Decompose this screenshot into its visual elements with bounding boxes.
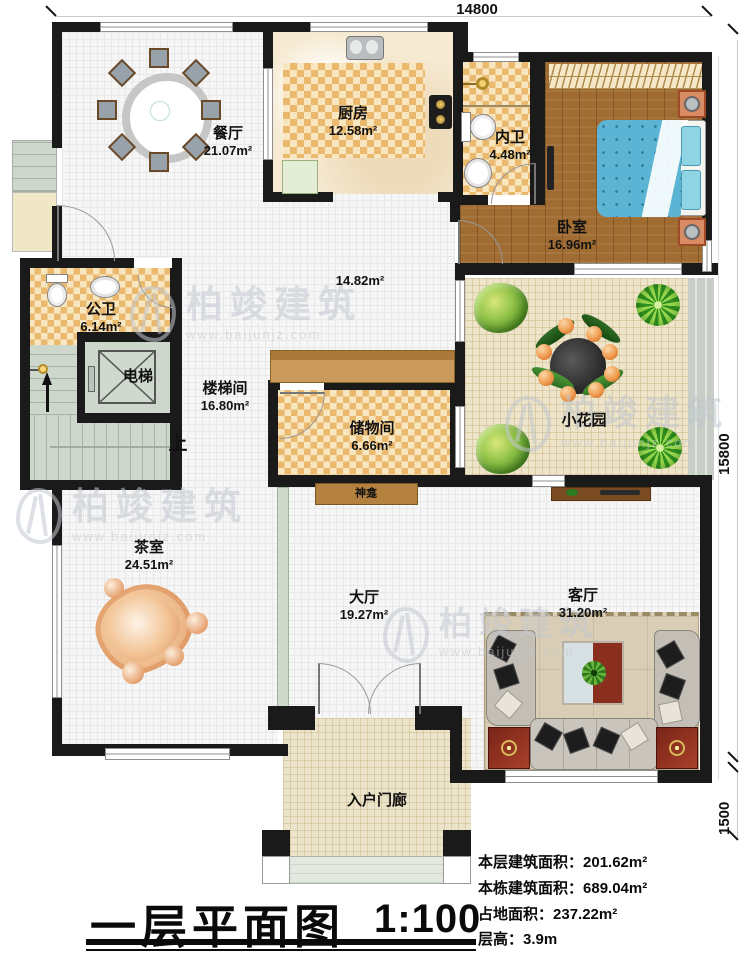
stat-value: 237.22m² [553, 906, 617, 923]
porch-base-block [443, 856, 471, 884]
centerpiece-fruit [586, 326, 602, 342]
centerpiece-fruit [538, 370, 554, 386]
kitchen-door-opening [263, 68, 273, 160]
centerpiece-fruit [588, 382, 604, 398]
room-area: 4.48m² [489, 147, 530, 163]
window [455, 280, 465, 342]
dimension-line-top [55, 16, 711, 17]
room-name: 餐厅 [213, 125, 243, 142]
nightstand-lamp [684, 224, 700, 240]
dimension-top-value: 14800 [442, 1, 512, 18]
porch-base-block [262, 856, 290, 884]
room-name: 楼梯间 [202, 380, 247, 397]
room-name: 厨房 [338, 105, 368, 122]
room-name: 神龛 [355, 487, 377, 499]
stat-label: 层高： [478, 931, 523, 948]
dimension-tick [727, 23, 738, 34]
garden-palm [638, 427, 682, 469]
room-label-tea: 茶室 24.51m² [125, 539, 173, 573]
sideboard-tv [600, 490, 640, 495]
room-label-dining: 餐厅 21.07m² [204, 125, 252, 159]
wardrobe [549, 64, 702, 89]
wall-segment [77, 342, 85, 413]
room-name: 储物间 [349, 420, 394, 437]
stat-label: 本层建筑面积： [478, 854, 583, 871]
room-area: 21.07m² [204, 143, 252, 159]
coffee-table-plant [582, 661, 606, 685]
sofa-pillow [658, 700, 683, 725]
dimension-line-right [737, 40, 738, 762]
sideboard-plant [566, 489, 578, 496]
stove-burner [436, 115, 445, 124]
bed-pillow [681, 126, 701, 166]
centerpiece-fruit [560, 386, 576, 402]
cabinet-emblem [501, 740, 517, 756]
room-label-public-bath: 公卫 6.14m² [80, 301, 121, 335]
contour-line-right [718, 56, 719, 780]
dining-chair [149, 152, 169, 172]
room-area: 16.80m² [201, 398, 249, 414]
bed-pillow [681, 170, 701, 210]
room-name: 卧室 [557, 219, 587, 236]
bath-sink [90, 276, 120, 298]
room-area: 6.14m² [80, 319, 121, 335]
wall-segment [438, 192, 463, 202]
window [310, 22, 428, 32]
dining-chair [201, 100, 221, 120]
shower-head [476, 77, 489, 90]
dining-chair [97, 100, 117, 120]
stairs-divider [50, 446, 170, 448]
porch-pillar [262, 830, 290, 856]
room-area: 16.96m² [548, 237, 596, 253]
stat-value: 201.62m² [583, 854, 647, 871]
window [52, 545, 62, 698]
room-label-garden: 小花园 [561, 412, 606, 430]
room-label-porch: 入户门廊 [347, 792, 407, 810]
room-name: 大厅 [349, 589, 379, 606]
room-name: 入户门廊 [347, 792, 407, 809]
stat-row: 占地面积：237.22m² [478, 902, 647, 928]
plan-scale: 1:100 [374, 897, 481, 942]
elevator-handle [88, 366, 95, 392]
tv-panel [547, 146, 554, 190]
title-underline [86, 939, 476, 945]
room-area: 14.82m² [336, 273, 384, 288]
exterior-stairs [12, 140, 57, 192]
stat-label: 占地面积： [478, 906, 553, 923]
floor-plan-page: 餐厅 21.07m² 厨房 12.58m² 内卫 4.48m² 卧室 16.96… [0, 0, 750, 958]
room-label-inner-bath: 内卫 4.48m² [489, 129, 530, 163]
porch-pillar [443, 830, 471, 856]
garden-centerpiece [528, 318, 628, 414]
window [473, 52, 519, 62]
room-area: 6.66m² [349, 438, 394, 454]
tea-room-pebble [122, 662, 144, 684]
room-area: 12.58m² [329, 123, 377, 139]
stairs-lower-flight [22, 415, 170, 483]
dimension-tick [727, 761, 738, 772]
porch-pillar [268, 706, 315, 730]
dimension-right-lower-value: 1500 [716, 780, 733, 835]
window [574, 263, 682, 275]
wall-segment [700, 487, 712, 783]
room-label-living: 客厅 31.20m² [559, 587, 607, 621]
dining-table-center [150, 101, 170, 121]
centerpiece-fruit [604, 366, 620, 382]
room-area: 24.51m² [125, 557, 173, 573]
wall-segment [20, 268, 30, 490]
console-counter [270, 350, 455, 383]
window [505, 770, 658, 783]
stat-label: 本栋建筑面积： [478, 880, 583, 897]
window [105, 748, 230, 760]
kitchen-sink-bowl [350, 40, 362, 54]
room-name: 小花园 [561, 412, 606, 429]
nightstand-lamp [684, 96, 700, 112]
room-label-hall: 大厅 19.27m² [340, 589, 388, 623]
centerpiece-fruit [602, 344, 618, 360]
room-label-kitchen: 厨房 12.58m² [329, 105, 377, 139]
shower-pipe [463, 83, 477, 85]
toilet-tank [46, 274, 68, 283]
dining-chair [149, 48, 169, 68]
room-name: 电梯 [123, 368, 153, 385]
room-name: 内卫 [495, 129, 525, 146]
room-name: 客厅 [568, 587, 598, 604]
room-label-bedroom: 卧室 16.96m² [548, 219, 596, 253]
centerpiece-fruit [536, 344, 552, 360]
wall-segment [458, 475, 712, 487]
dimension-line-right-lower [737, 772, 738, 840]
stairs-up-arrow-stem [46, 384, 49, 412]
corridor-area-label: 14.82m² [336, 273, 384, 289]
exterior-landing [12, 192, 57, 252]
stat-row: 层高：3.9m [478, 927, 647, 953]
wall-segment [52, 487, 62, 549]
centerpiece-fruit [558, 318, 574, 334]
toilet-bowl [47, 283, 67, 307]
kitchen-sink-bowl [366, 40, 378, 54]
door-opening [134, 258, 172, 268]
room-name: 茶室 [134, 539, 164, 556]
shrine-label: 神龛 [355, 487, 377, 500]
stairs-up-label: 上 [168, 434, 187, 457]
bath-sink [464, 158, 492, 188]
tea-hall-partition [277, 487, 289, 711]
shower-divider [463, 105, 530, 107]
building-stats: 本层建筑面积：201.62m² 本栋建筑面积：689.04m² 占地面积：237… [478, 850, 647, 953]
cabinet-emblem [669, 740, 685, 756]
wall-segment [20, 480, 182, 490]
room-area: 19.27m² [340, 607, 388, 623]
tea-room-pebble [186, 612, 208, 634]
tea-room-pebble [104, 578, 124, 598]
wall-segment [268, 380, 278, 487]
dimension-tick [45, 5, 56, 16]
window [100, 22, 233, 32]
kitchen-cabinet [282, 160, 318, 194]
stat-value: 689.04m² [583, 880, 647, 897]
stat-value: 3.9m [523, 931, 557, 948]
room-name: 公卫 [86, 301, 116, 318]
window [455, 406, 465, 468]
garden-palm [636, 284, 680, 326]
dimension-tick [701, 5, 712, 16]
room-label-storage: 储物间 6.66m² [349, 420, 394, 454]
stove-burner [436, 100, 445, 109]
title-underline-thin [86, 949, 476, 951]
room-label-elevator: 电梯 [123, 368, 153, 386]
garden-glass-strip [688, 278, 714, 480]
room-area: 31.20m² [559, 605, 607, 621]
room-label-stairwell: 楼梯间 16.80m² [201, 380, 249, 414]
stat-row: 本层建筑面积：201.62m² [478, 850, 647, 876]
wall-segment [77, 413, 182, 423]
tea-room-pebble [164, 646, 184, 666]
wall-segment [52, 22, 62, 148]
window [532, 475, 565, 487]
up-text: 上 [168, 434, 187, 455]
stat-row: 本栋建筑面积：689.04m² [478, 876, 647, 902]
plan-title: 一层平面图 [90, 891, 345, 957]
